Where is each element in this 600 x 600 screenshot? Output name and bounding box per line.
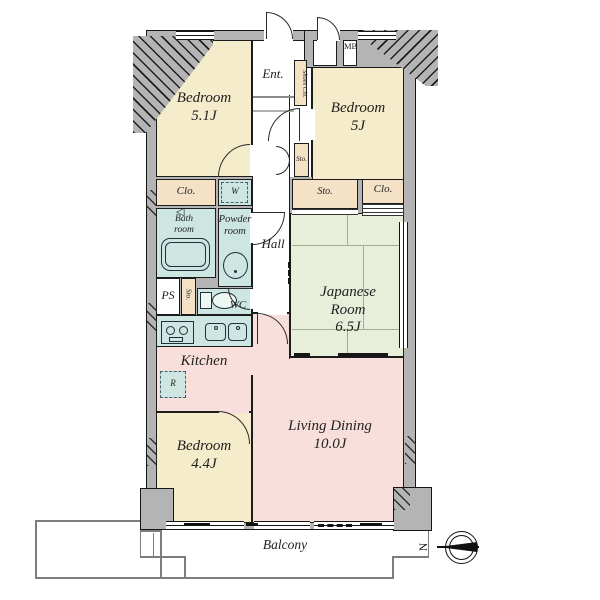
window-sash-mark (184, 523, 210, 526)
entrance-label: Ent. (256, 66, 290, 81)
balcony-line (184, 577, 393, 579)
closet-right-shelves (362, 204, 404, 216)
balcony-line (184, 556, 186, 579)
window-dashed-mark (318, 524, 352, 527)
storage-japanese-label: Sto. (292, 186, 358, 198)
hall-label: Hall (256, 236, 290, 251)
japanese-room-name-2: Room (331, 302, 366, 318)
japanese-room-size: 6.5J (335, 319, 360, 335)
bath-name-2: room (174, 225, 194, 235)
entrance-step-line-1 (253, 96, 294, 98)
doorway-gap (250, 145, 255, 176)
bath-label: Bath room (158, 214, 210, 236)
closet-left-label: Clo. (156, 185, 216, 198)
bedroom3-label: Bedroom 4.4J (156, 438, 252, 473)
bath-name-1: Bath (175, 214, 193, 224)
storage-hall-label: Sto. (293, 155, 310, 163)
kitchen-label: Kitchen (160, 353, 248, 371)
powder-name-2: room (224, 226, 246, 237)
powder-sink-drain (234, 270, 237, 273)
sliding-door-track (292, 209, 358, 215)
doorway-gap (250, 289, 255, 309)
powder-label: Powder room (218, 214, 252, 239)
window-bedroom2-top (358, 31, 396, 40)
sink-faucet-right (236, 326, 240, 330)
neighbor-step-line (35, 577, 185, 579)
bedroom2-size: 5J (351, 118, 365, 134)
bedroom2-label: Bedroom 5J (312, 100, 404, 135)
ps-label: PS (157, 288, 179, 302)
powder-sink (223, 252, 248, 279)
wall-hatch-left-3 (147, 438, 156, 466)
japanese-room-opening (287, 262, 291, 284)
window-sash-mark (360, 523, 382, 526)
fridge-label: R (160, 378, 186, 389)
window-living-bottom-1 (254, 521, 310, 530)
neighbor-step-line (160, 530, 162, 578)
balcony-partition (153, 533, 154, 557)
balcony-line (392, 556, 394, 579)
wall-hatch-corner-br (394, 488, 410, 510)
bedroom1-size: 5.1J (191, 108, 216, 124)
floor-plan: ◁ N Bedroom 5.1 (0, 0, 600, 600)
tatami-line (347, 215, 348, 245)
sink-faucet-left (214, 326, 218, 330)
balcony-line (140, 530, 141, 557)
wall-hatch-left-1 (146, 190, 156, 216)
japanese-room-name-1: Japanese (320, 284, 376, 300)
neighbor-step-line (35, 520, 37, 579)
living-dining-name: Living Dining (288, 418, 372, 434)
bedroom2-name: Bedroom (331, 100, 385, 116)
compass-north-label: N (416, 540, 432, 554)
japanese-room-door-track-2 (338, 353, 388, 357)
bathtub-inner (165, 242, 206, 267)
living-dining-label: Living Dining 10.0J (265, 418, 395, 453)
entrance-door (266, 12, 293, 39)
japanese-room-door-track-1 (294, 353, 310, 357)
bedroom1-name: Bedroom (177, 90, 231, 106)
closet-right-label: Clo. (362, 183, 404, 196)
japanese-room-label: Japanese Room 6.5J (292, 284, 404, 337)
neighbor-step-line (140, 530, 161, 532)
washer-label: W (218, 186, 252, 197)
balcony-line (392, 556, 429, 558)
shoes-closet-label: Shoes Clo. (294, 62, 307, 106)
powder-name-1: Powder (219, 214, 252, 225)
porch-door (317, 17, 340, 40)
stove-grill (169, 337, 183, 342)
neighbor-step-line (35, 520, 141, 522)
meter-box-label: MB (344, 42, 356, 51)
wall-hatch-left-2 (146, 303, 156, 331)
wc-label: WC (226, 299, 250, 312)
balcony-line (140, 556, 185, 558)
tatami-line (292, 245, 402, 246)
window-sash-mark (246, 523, 258, 526)
storage-wc-label: Sto. (184, 284, 193, 304)
living-dining-size: 10.0J (314, 436, 347, 452)
porch-alcove (313, 40, 337, 66)
kitchen-opening (249, 347, 255, 375)
stove-burner-right (179, 326, 188, 335)
window-bedroom1-top (176, 31, 214, 40)
bedroom3-size: 4.4J (191, 456, 216, 472)
balcony-label: Balcony (240, 537, 330, 553)
wall-hatch-right-1 (405, 436, 416, 464)
window-japanese-right (399, 222, 408, 348)
bedroom3-name: Bedroom (177, 438, 231, 454)
stove-burner-left (166, 326, 175, 335)
toilet-tank (200, 292, 212, 309)
